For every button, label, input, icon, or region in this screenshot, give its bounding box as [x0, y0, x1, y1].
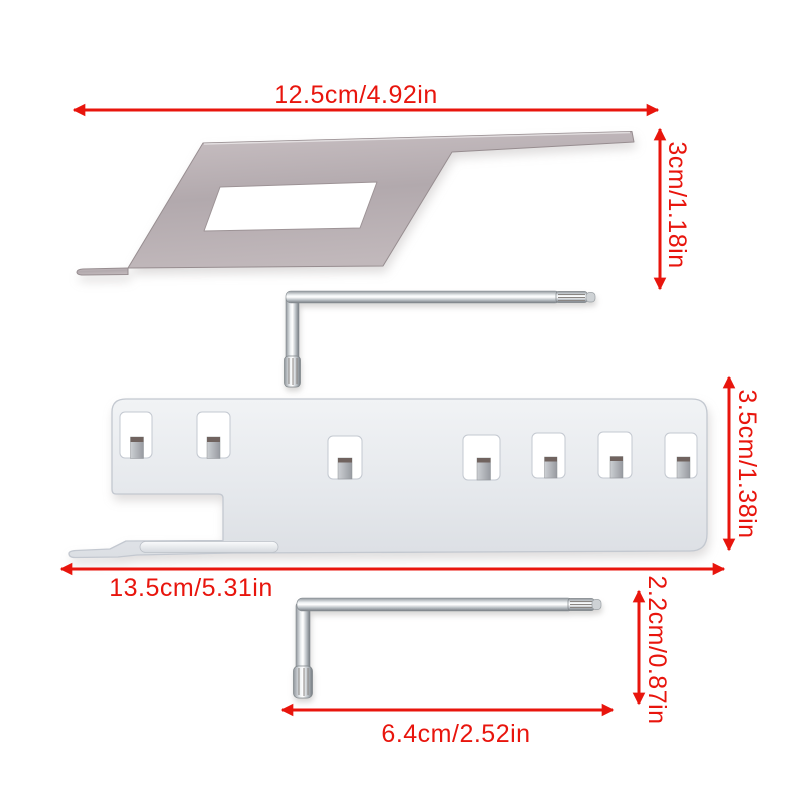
bracket-tab-cap	[338, 458, 352, 463]
bracket-hole-4	[463, 435, 500, 480]
dim-label-wrench-width: 6.4cm/2.52in	[381, 720, 530, 748]
bracket-tab-cap	[610, 457, 623, 462]
large-wrench-bottom-tip	[294, 666, 313, 698]
product-photo-canvas: 12.5cm/4.92in 3cm/1.18in 3.5cm/1.38in 13…	[0, 0, 800, 800]
dim-label-bracket-width: 13.5cm/5.31in	[109, 574, 273, 602]
bracket-hole-7	[665, 433, 697, 478]
bracket-hole-6	[598, 432, 632, 478]
small-wrench-horizontal-arm	[286, 291, 560, 303]
bracket-tab-cap	[477, 458, 491, 463]
bracket-embossed-rib	[140, 542, 278, 553]
bracket-tab-cap	[207, 437, 220, 442]
bracket-hole-5	[532, 433, 565, 478]
top-plate-body	[128, 132, 634, 269]
large-wrench-horizontal-arm	[297, 598, 573, 611]
bracket-hole-2	[197, 412, 230, 459]
mounting-bracket	[69, 399, 707, 558]
dim-label-plate-height: 3cm/1.18in	[663, 141, 691, 268]
small-torx-wrench	[285, 291, 596, 387]
top-plate	[77, 132, 634, 276]
bracket-tab-cap	[131, 437, 144, 442]
dim-label-plate-width: 12.5cm/4.92in	[274, 81, 438, 109]
dim-label-wrench-height: 2.2cm/0.87in	[643, 575, 671, 724]
bracket-tab-cap	[545, 457, 558, 462]
product-photo: 12.5cm/4.92in 3cm/1.18in 3.5cm/1.38in 13…	[0, 0, 800, 800]
top-plate-foot	[77, 268, 128, 275]
large-wrench-right-tip-end	[592, 600, 601, 610]
bracket-tab-cap	[677, 457, 690, 462]
top-plate-cutout	[204, 182, 377, 231]
bracket-hole-1	[120, 412, 152, 459]
bracket-hole-3	[328, 436, 362, 479]
large-torx-wrench	[294, 598, 602, 698]
dim-label-bracket-height: 3.5cm/1.38in	[733, 389, 761, 538]
small-wrench-right-tip-end	[586, 293, 595, 303]
